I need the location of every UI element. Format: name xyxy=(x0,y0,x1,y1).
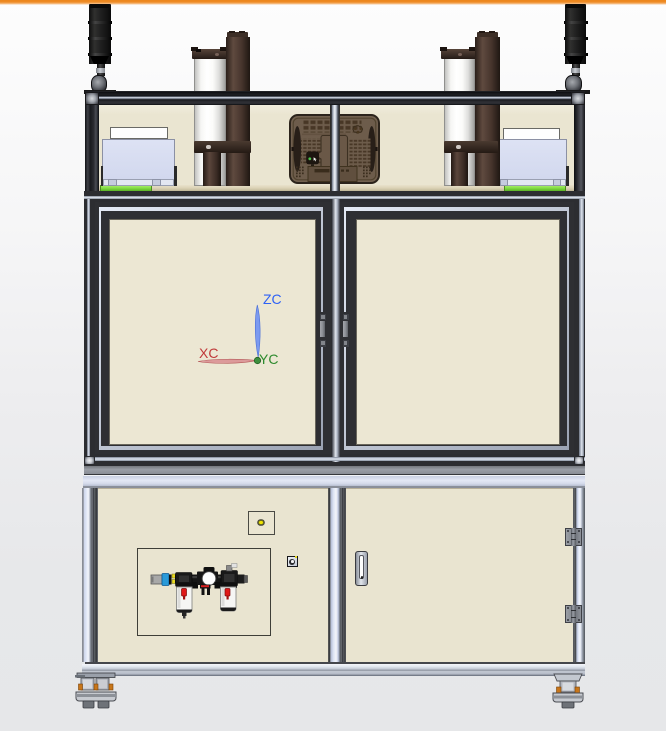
svg-text:ZC: ZC xyxy=(263,291,282,307)
svg-text:XC: XC xyxy=(199,345,218,361)
svg-text:YC: YC xyxy=(259,351,278,367)
